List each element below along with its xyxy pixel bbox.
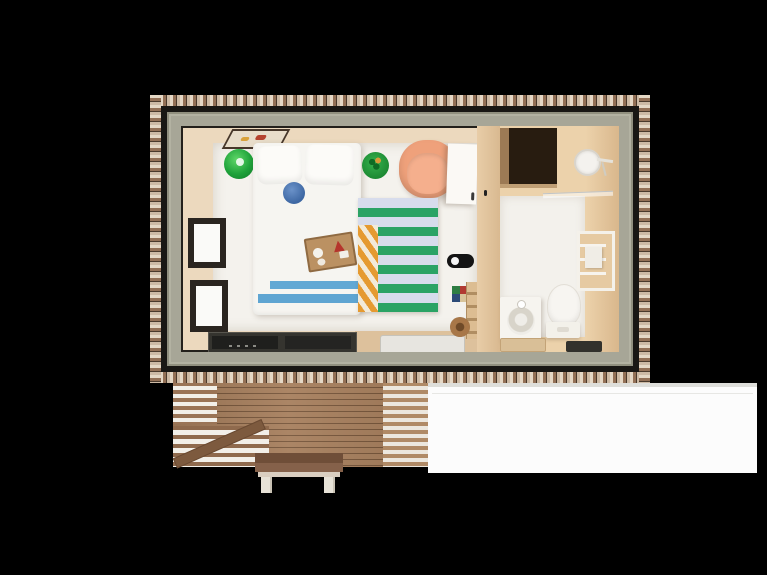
storage-niche [500, 128, 557, 188]
sink-vanity [500, 297, 541, 341]
deck-open-slats-top-left [173, 382, 217, 424]
patio-shadow-strip [428, 383, 757, 387]
toilet-flush-button [557, 327, 569, 332]
tray-cup [317, 258, 326, 266]
sink-basin [507, 307, 535, 335]
tray-napkin [339, 250, 349, 258]
round-basket [450, 317, 470, 337]
shower-pipe [601, 162, 606, 176]
breakfast-tray [304, 231, 358, 272]
book-navy [452, 294, 460, 302]
partition-wall [477, 126, 500, 352]
shingle-edge-top [150, 95, 650, 106]
sliding-glass-door [208, 332, 357, 352]
toilet-bowl [547, 284, 581, 326]
step-board-lower [255, 463, 343, 472]
plant-pot [362, 152, 389, 179]
rug-orange-edge [358, 225, 378, 312]
white-patio [428, 383, 757, 473]
glass-panel-left [212, 336, 278, 349]
dark-bathmat [566, 341, 602, 352]
step-leg-right [324, 477, 335, 493]
shingle-edge-bottom [150, 372, 650, 383]
floor-tray [500, 338, 546, 352]
step-leg-left [261, 477, 272, 493]
window-glass [196, 286, 222, 326]
window-glass [194, 224, 220, 262]
artwork-mark-red [254, 135, 267, 140]
patio-seam-line [432, 393, 753, 394]
bathroom [500, 126, 619, 352]
armchair-seat [407, 153, 449, 194]
pillow-right [304, 144, 354, 186]
pillow-left [256, 145, 302, 185]
wall-towel-rack [577, 231, 615, 291]
shingle-edge-right [639, 95, 650, 383]
knit-cushion [283, 182, 305, 204]
green-pouf [224, 149, 254, 179]
double-bed [253, 143, 361, 315]
glass-reflection-dots [229, 345, 259, 347]
artwork-mark-yellow [240, 137, 250, 141]
open-door [446, 143, 478, 204]
striped-rug [358, 198, 438, 312]
foot-blanket-stripe-2 [258, 294, 361, 303]
entry-step [255, 453, 345, 495]
shingle-edge-left [150, 95, 161, 383]
deck-open-slats-right [383, 382, 428, 467]
tray-plate [312, 247, 323, 258]
foot-blanket-stripe-1 [270, 281, 361, 289]
partition-keyhole [484, 190, 487, 196]
window-lower [190, 280, 228, 332]
hook-knob [451, 257, 459, 265]
niche-lip [500, 184, 557, 188]
window-upper [188, 218, 226, 268]
wall-hook [447, 254, 474, 268]
rack-towel [585, 247, 602, 268]
cabin-interior [181, 126, 619, 352]
plant-leaves [367, 156, 384, 171]
toilet [546, 284, 580, 338]
book-green [452, 286, 460, 294]
sink-faucet [517, 300, 526, 309]
pouf-highlight [236, 158, 244, 166]
shower-head [574, 149, 601, 176]
cabin-floorplan-render [0, 0, 767, 575]
door-handle [471, 192, 474, 200]
entry-doormat [380, 335, 465, 352]
niche-shelf-edge [500, 128, 509, 188]
glass-panel-right [285, 336, 351, 349]
rack-slat-3 [580, 272, 606, 275]
